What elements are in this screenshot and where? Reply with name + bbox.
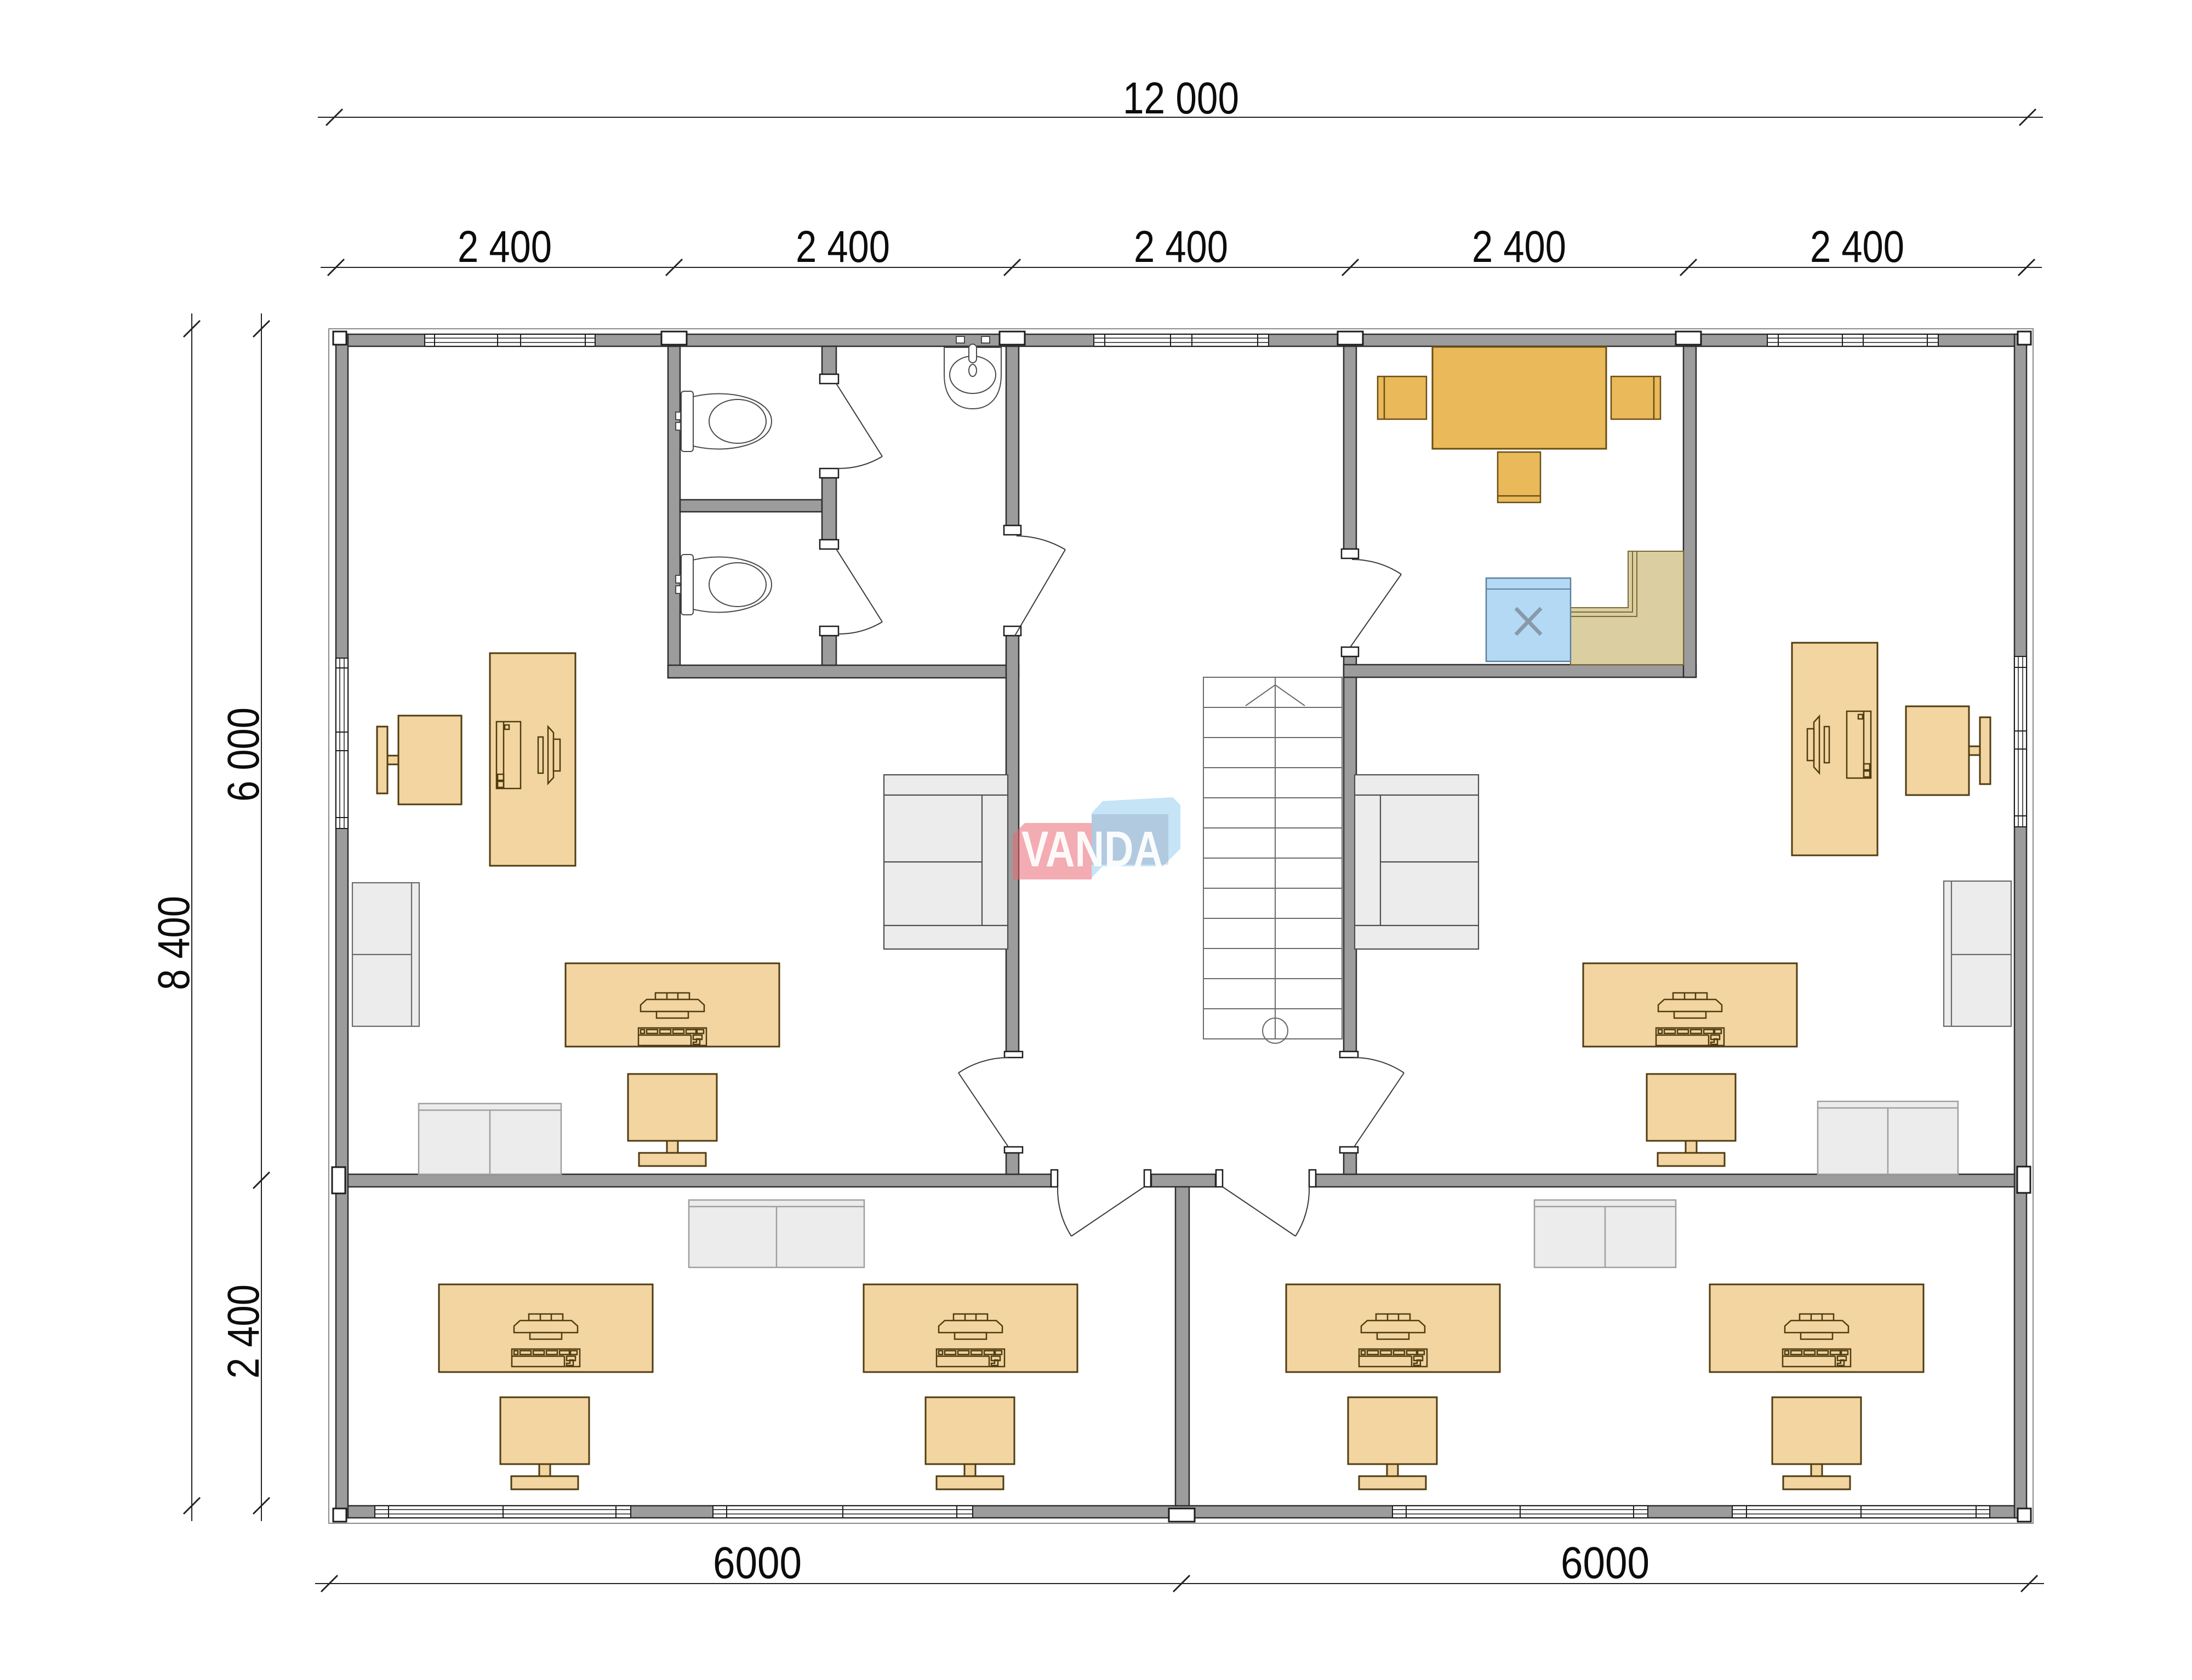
svg-text:2 400: 2 400 bbox=[1472, 222, 1566, 272]
svg-text:2 400: 2 400 bbox=[219, 1284, 269, 1379]
svg-text:8 400: 8 400 bbox=[149, 896, 199, 990]
svg-text:12 000: 12 000 bbox=[1123, 73, 1239, 123]
svg-text:6 000: 6 000 bbox=[219, 707, 269, 802]
svg-text:2 400: 2 400 bbox=[796, 222, 890, 272]
svg-text:6000: 6000 bbox=[713, 1538, 802, 1588]
svg-text:2 400: 2 400 bbox=[1134, 222, 1228, 272]
svg-text:6000: 6000 bbox=[1561, 1538, 1649, 1588]
svg-text:2 400: 2 400 bbox=[1810, 222, 1904, 272]
svg-text:2 400: 2 400 bbox=[458, 222, 552, 272]
svg-text:VANDA: VANDA bbox=[1021, 821, 1163, 877]
